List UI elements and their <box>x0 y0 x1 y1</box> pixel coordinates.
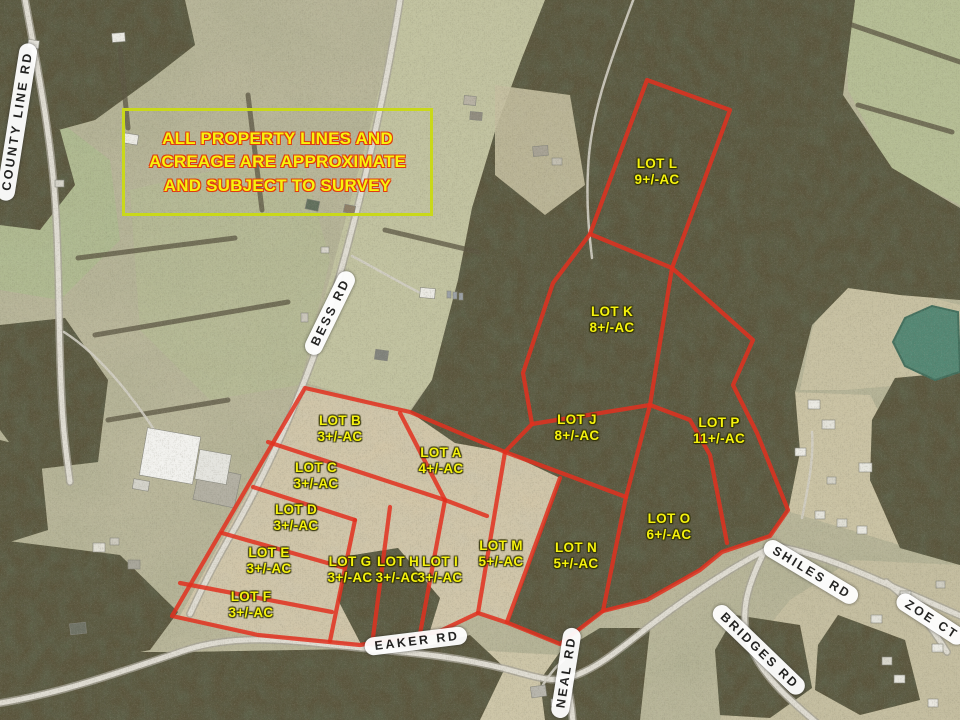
aerial-map: ALL PROPERTY LINES AND ACREAGE ARE APPRO… <box>0 0 960 720</box>
lot-label-j: LOT J8+/-AC <box>555 412 600 444</box>
lot-j-o-divider <box>626 405 650 497</box>
disclaimer-box: ALL PROPERTY LINES AND ACREAGE ARE APPRO… <box>122 108 433 216</box>
lot-l-south-line <box>590 234 672 268</box>
lot-label-i: LOT I3+/-AC <box>418 554 463 586</box>
lot-k-east-line <box>650 268 672 405</box>
lot-label-k: LOT K8+/-AC <box>590 304 635 336</box>
lot-label-b: LOT B3+/-AC <box>318 413 363 445</box>
lot-j-n-divider <box>505 452 626 497</box>
disclaimer-line-2: ACREAGE ARE APPROXIMATE <box>125 150 430 173</box>
lot-label-n: LOT N5+/-AC <box>554 540 599 572</box>
lot-label-o: LOT O6+/-AC <box>647 511 692 543</box>
lot-label-l: LOT L9+/-AC <box>635 156 680 188</box>
lot-label-e: LOT E3+/-AC <box>247 545 292 577</box>
lot-i-m-divider <box>478 452 505 613</box>
lot-label-d: LOT D3+/-AC <box>274 502 319 534</box>
lot-label-p: LOT P11+/-AC <box>693 415 745 447</box>
lot-label-f: LOT F3+/-AC <box>229 589 274 621</box>
lot-label-c: LOT C3+/-AC <box>294 460 339 492</box>
lot-label-a: LOT A4+/-AC <box>419 445 464 477</box>
lot-label-m: LOT M5+/-AC <box>479 538 524 570</box>
lot-label-g: LOT G3+/-AC <box>328 554 373 586</box>
lot-label-h: LOT H3+/-AC <box>376 554 421 586</box>
disclaimer-line-1: ALL PROPERTY LINES AND <box>125 127 430 150</box>
disclaimer-line-3: AND SUBJECT TO SURVEY <box>125 174 430 197</box>
lot-n-o-divider <box>603 497 626 611</box>
